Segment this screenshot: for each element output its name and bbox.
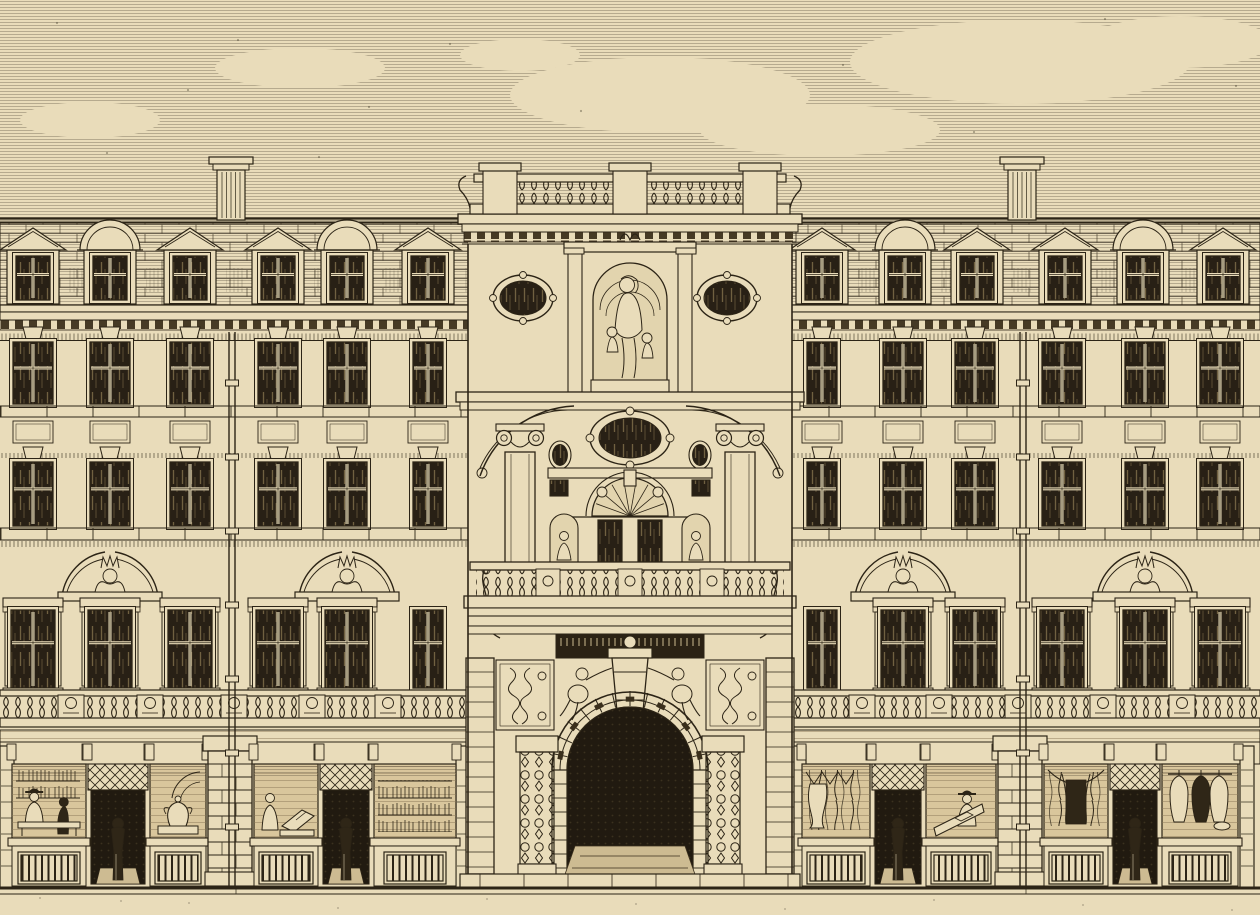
facade-window [165,607,216,692]
shop-display-window [8,764,90,886]
aedicule-window [945,598,1005,694]
hanging-garments [1168,770,1232,830]
facade-window [410,607,447,692]
cloud [20,102,160,138]
basement-grille [1169,852,1231,884]
balcony-balustrade [790,690,1260,727]
aedicule-window [1032,598,1092,694]
portal-pilaster [766,658,794,874]
central-tower [456,163,804,888]
facade-window [410,459,447,530]
facade-window [408,253,449,304]
facade-window [90,253,131,304]
small-oval-window [549,441,571,469]
stall-riser [1162,846,1238,886]
aedicule-window [317,598,377,694]
stall-riser [254,846,318,886]
tower-balustrade [459,163,801,214]
shop-door [872,764,924,884]
shop-display-window [798,764,874,886]
stall-riser [802,846,870,886]
bookshelves [378,780,452,832]
shop-display-window [1040,764,1112,886]
facade-window [255,339,302,408]
small-square-window [692,480,710,496]
facade-window [167,339,214,408]
ornament-panel [706,660,764,730]
facade-window [952,459,999,530]
basement-grille [931,852,991,884]
facade-window [87,339,134,408]
facade-window [85,607,136,692]
facade-window [322,607,373,692]
shop-figure [112,818,125,880]
shop-door [1110,764,1160,884]
portal-pilaster [466,658,494,874]
facade-window [804,459,841,530]
facade-window [324,459,371,530]
facade-window [952,339,999,408]
shop-door [320,764,372,884]
cornice [790,305,1260,341]
facade-window [1039,459,1086,530]
facade-window [1123,253,1164,304]
aedicule-window [3,598,63,694]
facade-window [327,253,368,304]
tower-plinth [460,874,800,888]
small-oval-window [689,441,711,469]
facade-window [10,459,57,530]
cloud [215,48,385,88]
shop-display-window [1158,764,1242,886]
facade-window [1039,339,1086,408]
bookshelves [16,770,80,800]
ornamented-pilaster [516,736,558,876]
facade-window [1197,459,1244,530]
facade-window [1197,339,1244,408]
basement-grille [384,852,446,884]
wing-right [789,219,1260,895]
facade-window [950,607,1001,692]
mansard-roof [789,219,1260,306]
facade-window [258,253,299,304]
stall-riser [150,846,206,886]
mansard-roof [0,219,482,306]
small-square-window [550,480,568,496]
aedicule-window [1115,598,1175,694]
engraving [0,0,1260,915]
cloud [460,39,580,71]
facade-window [1122,339,1169,408]
facade-window [957,253,998,304]
engraving-building-facade [0,0,1260,915]
shop-display-window [922,764,1000,886]
aedicule-window [80,598,140,694]
basement-grille [1049,852,1103,884]
facade-window [880,339,927,408]
facade-window [10,339,57,408]
shop-pilaster [1240,746,1254,888]
facade-window [13,253,54,304]
facade-window [324,339,371,408]
facade-window [410,339,447,408]
shop-display-window [370,764,460,886]
stall-riser [1044,846,1108,886]
facade-window [8,607,59,692]
shop-display-window [250,764,322,886]
shop-display-window [146,764,210,886]
engraving-canvas [0,0,1260,915]
facade-window [1045,253,1086,304]
small-statue-niche [550,514,578,562]
aedicule-window [248,598,308,694]
draped-fabrics [806,770,866,830]
facade-window [885,253,926,304]
facade-window [1203,253,1244,304]
facade-window [253,607,304,692]
basement-grille [259,852,313,884]
facade-window [255,459,302,530]
cloud [700,104,940,156]
facade-window [804,339,841,408]
aedicule-window [873,598,933,694]
basement-grille [18,852,80,884]
basement-grille [807,852,865,884]
facade-window [1037,607,1088,692]
wing-left [0,219,482,895]
stall-riser [374,846,456,886]
stall-riser [926,846,996,886]
basement-grille [155,852,201,884]
shop-figure [1129,818,1142,880]
shop-door [88,764,148,884]
facade-window [167,459,214,530]
ornament-panel [496,660,554,730]
ornamented-pilaster [702,736,744,876]
facade-window [802,253,843,304]
aedicule-window [1190,598,1250,694]
facade-window [878,607,929,692]
small-statue-niche [682,514,710,562]
facade-window [880,459,927,530]
facade-window [87,459,134,530]
facade-window [804,607,841,692]
aedicule-window [160,598,220,694]
stall-riser [12,846,86,886]
shop-figure [892,818,905,880]
facade-window [1120,607,1171,692]
shop-figure [340,818,353,880]
desk [280,830,314,836]
shop-figure [58,798,69,835]
facade-window [1122,459,1169,530]
facade-window [170,253,211,304]
facade-window [1195,607,1246,692]
